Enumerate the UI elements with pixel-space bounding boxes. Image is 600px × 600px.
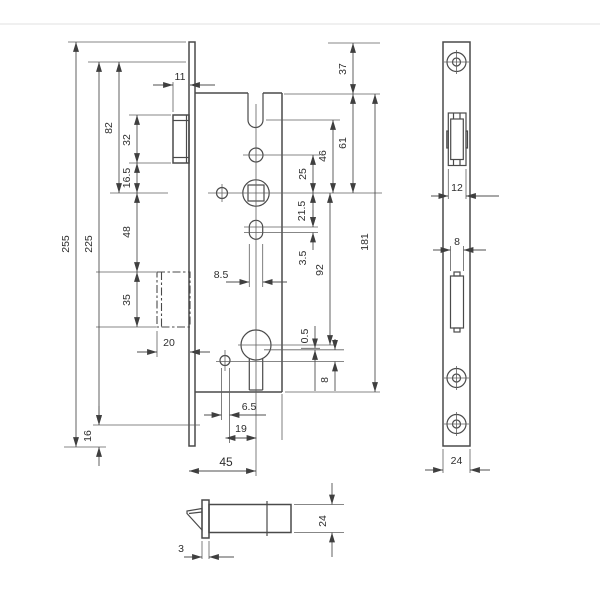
dimension-labels-front: 255 225 82 32 16.5 48 35 16 11 20 8.5 37… — [60, 63, 371, 469]
dim-latch-height: 32 — [121, 134, 133, 146]
dim-screw-distance: 225 — [83, 235, 95, 253]
dimension-lines-front — [76, 42, 375, 471]
side-view: 24 3 — [178, 483, 344, 559]
mortise-lock-drawing: 255 225 82 32 16.5 48 35 16 11 20 8.5 37… — [0, 0, 600, 600]
dim-box-height: 35 — [121, 294, 133, 306]
dim-screw-to-axis: 19 — [235, 423, 247, 435]
dim-spindle-to-box: 48 — [121, 226, 133, 238]
dim-plate-thickness: 3 — [178, 543, 184, 555]
dim-overall-length: 255 — [60, 235, 72, 253]
dim-backset: 45 — [219, 455, 233, 469]
screw-hole-top — [444, 50, 469, 74]
faceplate-side — [202, 500, 209, 538]
top-notch — [248, 93, 263, 128]
dim-body-top-to-spindle: 61 — [337, 137, 349, 149]
hidden-deadbolt-box — [157, 272, 190, 327]
dim-hole-to-spindle: 25 — [297, 168, 309, 180]
front-view-lock-body — [157, 42, 282, 446]
dim-body-height: 181 — [359, 233, 371, 251]
dim-line-gap: 8 — [319, 377, 331, 383]
latch-bolt-front — [173, 115, 189, 163]
case-side — [209, 505, 291, 533]
dim-spindle-to-slot: 21.5 — [296, 201, 308, 222]
technical-drawing-canvas: 255 225 82 32 16.5 48 35 16 11 20 8.5 37… — [0, 0, 600, 600]
dim-case-depth: 24 — [317, 515, 329, 527]
dim-screw-hole-dia: 6.5 — [242, 401, 257, 413]
dim-plate-width: 24 — [451, 455, 463, 467]
deadbolt-opening — [451, 272, 464, 332]
lock-case-outline — [195, 93, 282, 392]
dim-notch-to-spindle: 46 — [317, 150, 329, 162]
dim-top-to-spindle: 82 — [103, 122, 115, 134]
dim-bottom-margin: 16 — [82, 430, 94, 442]
latch-opening — [447, 113, 468, 166]
dim-spindle-to-cylinder: 92 — [314, 264, 326, 276]
dim-offset-small: 0.5 — [299, 329, 311, 344]
faceplate-view: 12 8 24 — [425, 42, 499, 473]
dim-top-offset: 37 — [337, 63, 349, 75]
faceplate-front — [189, 42, 195, 446]
screw-hole-middle — [444, 366, 469, 390]
dim-slot-width: 8.5 — [214, 269, 229, 281]
extension-lines — [64, 42, 382, 476]
dim-latch-to-spindle: 16.5 — [121, 168, 133, 189]
dim-bolt-opening-width: 8 — [454, 236, 460, 248]
dim-slot-play: 3.5 — [297, 251, 309, 266]
dim-latch-opening-width: 12 — [451, 182, 463, 194]
screw-hole-bottom — [444, 412, 469, 436]
dim-latch-projection: 11 — [175, 71, 186, 83]
dim-bolt-width: 20 — [163, 337, 175, 349]
